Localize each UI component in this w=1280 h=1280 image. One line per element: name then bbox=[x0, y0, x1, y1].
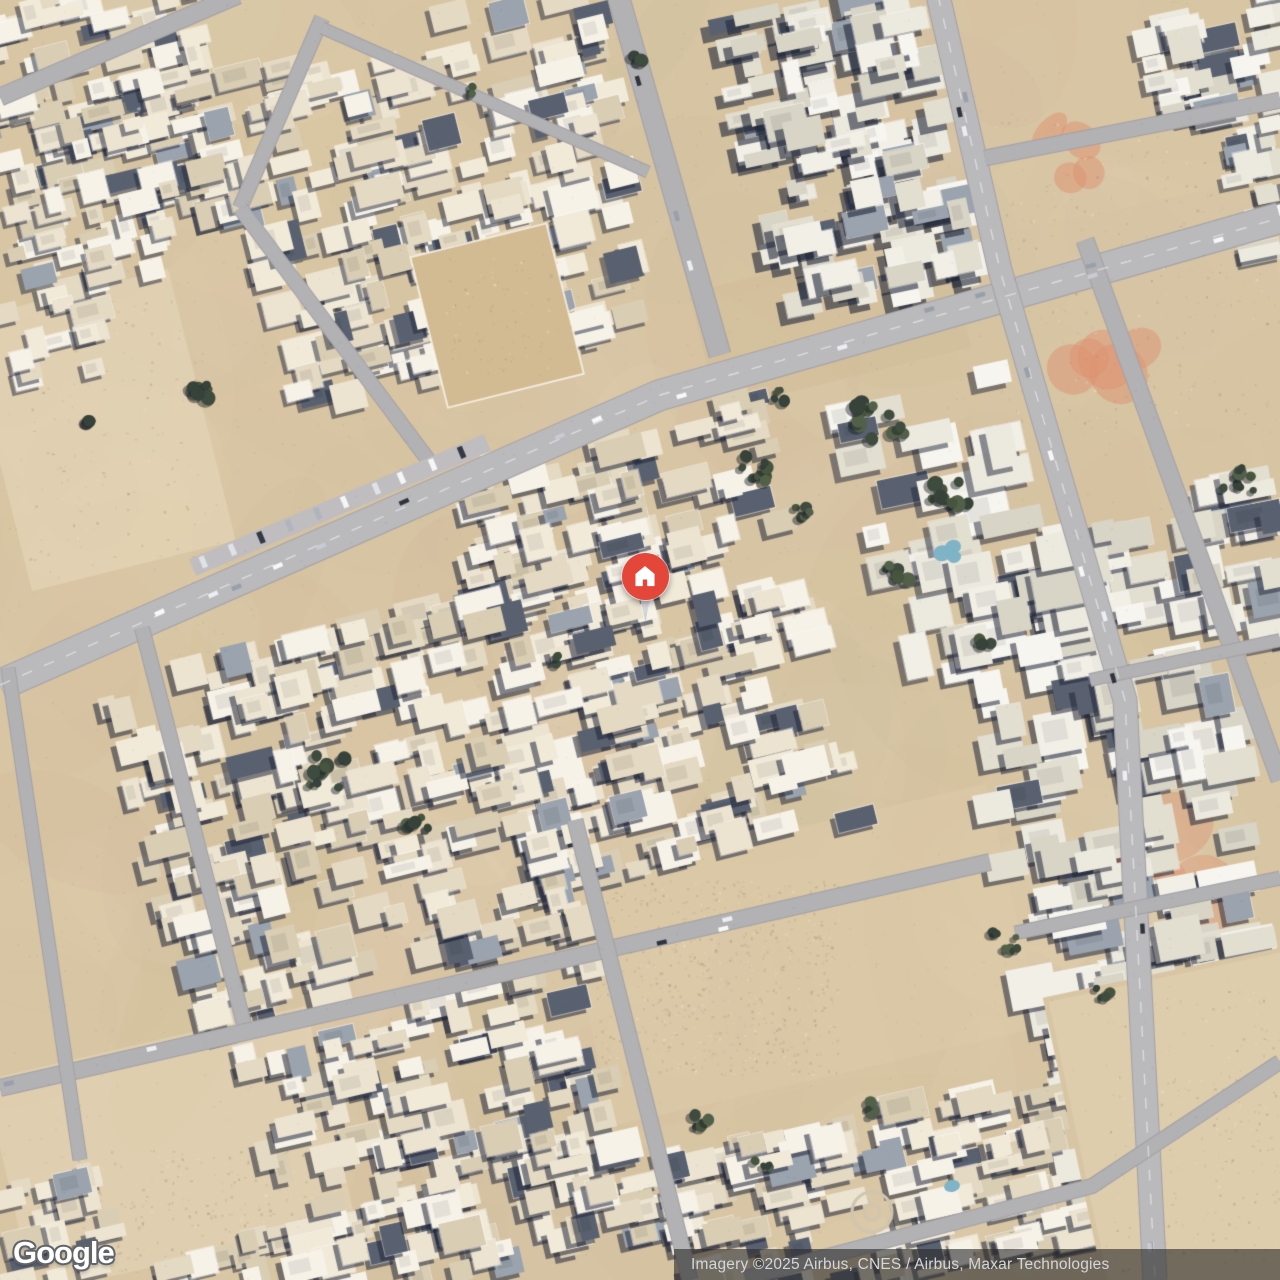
attribution-bar: Imagery ©2025 Airbus, CNES / Airbus, Max… bbox=[674, 1249, 1280, 1280]
satellite-imagery-canvas[interactable] bbox=[0, 0, 1280, 1280]
google-logo[interactable]: Google bbox=[13, 1235, 114, 1271]
marker-circle bbox=[622, 553, 669, 600]
home-icon bbox=[632, 563, 658, 589]
attribution-text: Imagery ©2025 Airbus, CNES / Airbus, Max… bbox=[691, 1256, 1109, 1274]
map-viewport: Google Imagery ©2025 Airbus, CNES / Airb… bbox=[0, 0, 1280, 1280]
